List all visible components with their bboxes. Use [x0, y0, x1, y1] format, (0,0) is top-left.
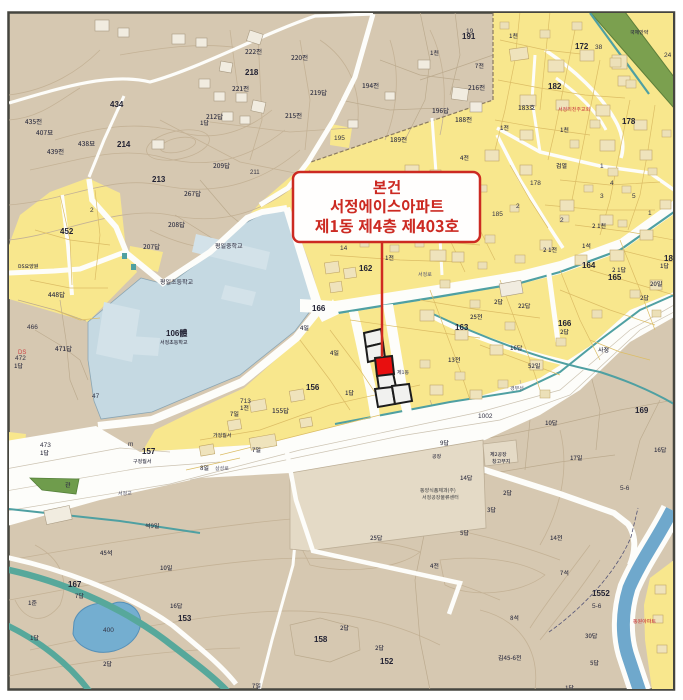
svg-text:165: 165 — [608, 273, 622, 282]
svg-text:185: 185 — [492, 211, 503, 218]
svg-text:211: 211 — [250, 170, 260, 176]
svg-text:4: 4 — [610, 180, 614, 187]
svg-text:3: 3 — [600, 193, 604, 200]
svg-text:400: 400 — [103, 627, 114, 634]
svg-text:172: 172 — [575, 42, 589, 51]
svg-text:195: 195 — [334, 135, 345, 142]
svg-text:182: 182 — [548, 82, 562, 91]
svg-text:214: 214 — [117, 140, 131, 149]
svg-text:163: 163 — [455, 323, 469, 332]
svg-text:156: 156 — [306, 383, 320, 392]
svg-text:18: 18 — [664, 254, 673, 263]
svg-text:473: 473 — [40, 442, 51, 449]
svg-text:169: 169 — [635, 406, 649, 415]
svg-text:5: 5 — [632, 193, 636, 200]
svg-text:1002: 1002 — [478, 413, 493, 420]
svg-text:2: 2 — [516, 203, 520, 210]
svg-text:178: 178 — [530, 180, 541, 187]
svg-text:178: 178 — [622, 117, 636, 126]
svg-text:m: m — [128, 441, 133, 448]
svg-text:164: 164 — [582, 261, 596, 270]
svg-text:1: 1 — [600, 163, 604, 170]
svg-text:106體: 106體 — [166, 328, 187, 338]
svg-text:157: 157 — [142, 447, 156, 456]
svg-text:713: 713 — [240, 398, 251, 405]
svg-text:158: 158 — [314, 635, 328, 644]
svg-text:452: 452 — [60, 227, 74, 236]
svg-text:DS: DS — [18, 350, 26, 356]
svg-text:1: 1 — [648, 210, 652, 217]
svg-text:2: 2 — [560, 217, 564, 224]
svg-text:213: 213 — [152, 175, 166, 184]
svg-text:218: 218 — [245, 68, 259, 77]
svg-text:167: 167 — [68, 580, 82, 589]
svg-text:19: 19 — [466, 28, 474, 35]
svg-text:472: 472 — [15, 355, 26, 362]
svg-text:466: 466 — [27, 324, 38, 331]
svg-text:166: 166 — [312, 304, 326, 313]
svg-text:166: 166 — [558, 319, 572, 328]
svg-text:434: 434 — [110, 100, 124, 109]
svg-text:1552: 1552 — [592, 589, 610, 598]
svg-text:5-6: 5-6 — [620, 485, 630, 492]
svg-text:14: 14 — [340, 245, 348, 252]
svg-text:153: 153 — [178, 614, 192, 623]
svg-text:47: 47 — [92, 393, 100, 400]
svg-text:24: 24 — [664, 52, 672, 59]
svg-text:162: 162 — [359, 264, 373, 273]
svg-text:5-6: 5-6 — [592, 603, 602, 610]
svg-text:38: 38 — [595, 44, 603, 51]
svg-text:2: 2 — [90, 207, 94, 214]
svg-text:152: 152 — [380, 657, 394, 666]
